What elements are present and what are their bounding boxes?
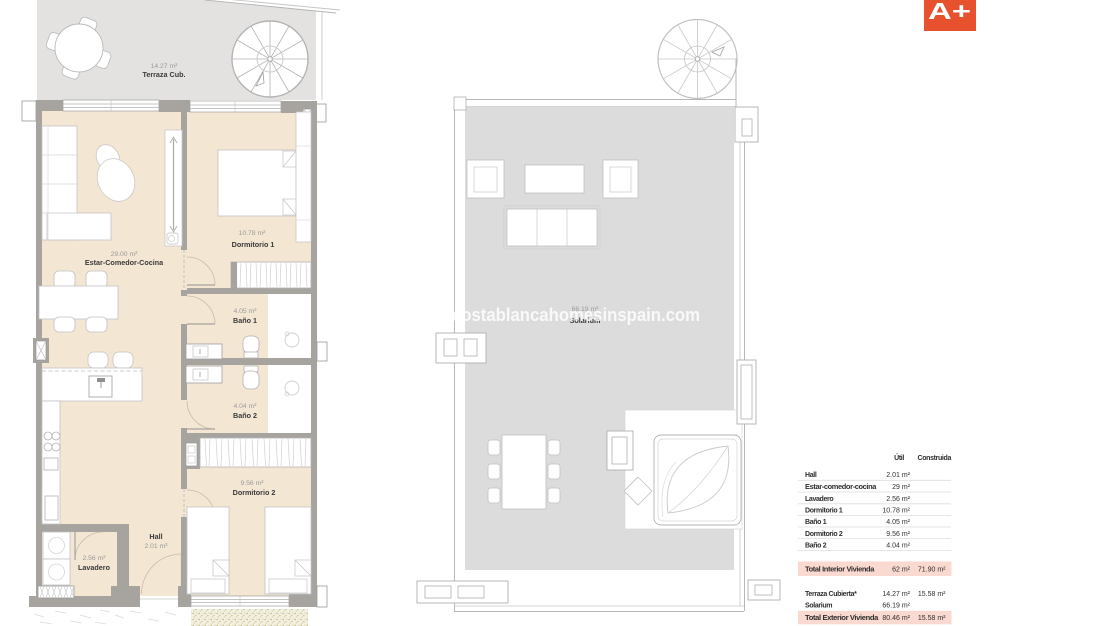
svg-text:Lavadero: Lavadero [78,563,111,572]
svg-text:10.78 m²: 10.78 m² [882,508,910,515]
svg-text:2.56 m²: 2.56 m² [82,555,106,562]
svg-text:29.00 m²: 29.00 m² [111,251,139,258]
svg-text:9.56 m²: 9.56 m² [886,531,910,538]
svg-text:Terraza Cub.: Terraza Cub. [142,70,185,79]
svg-text:Terraza Cubierta*: Terraza Cubierta* [805,591,857,598]
svg-text:Construida: Construida [918,455,952,462]
svg-text:Útil: Útil [894,453,904,462]
svg-text:9.56 m²: 9.56 m² [240,480,264,487]
svg-text:Dormitorio 2: Dormitorio 2 [805,531,843,538]
svg-text:Estar-Comedor-Cocina: Estar-Comedor-Cocina [85,258,164,267]
svg-text:costablancahomesinspain.com: costablancahomesinspain.com [452,304,700,325]
svg-text:Dormitorio 1: Dormitorio 1 [805,508,843,515]
svg-text:Baño 2: Baño 2 [805,542,827,549]
svg-text:10.78 m²: 10.78 m² [239,230,267,237]
svg-text:Lavadero: Lavadero [805,496,833,503]
svg-text:2.01 m²: 2.01 m² [886,472,910,479]
svg-text:15.58 m²: 15.58 m² [918,615,946,622]
svg-text:Dormitorio 1: Dormitorio 1 [232,240,275,249]
svg-text:80.46 m²: 80.46 m² [882,615,910,622]
svg-text:71.90 m²: 71.90 m² [918,567,946,574]
svg-text:A+: A+ [928,0,971,24]
svg-text:Baño 1: Baño 1 [805,519,827,526]
svg-text:4.05 m²: 4.05 m² [886,519,910,526]
svg-text:66.19 m²: 66.19 m² [882,603,910,610]
svg-text:4.04 m²: 4.04 m² [886,542,910,549]
svg-text:Total Interior Vivienda: Total Interior Vivienda [805,567,874,574]
svg-text:14.27 m²: 14.27 m² [151,63,179,70]
svg-text:Dormitorio 2: Dormitorio 2 [233,488,276,497]
svg-text:Baño 2: Baño 2 [233,411,257,420]
svg-text:Estar-comedor-cocina: Estar-comedor-cocina [805,484,876,491]
svg-text:Total Exterior Vivienda: Total Exterior Vivienda [805,615,878,622]
svg-text:2.56 m²: 2.56 m² [886,496,910,503]
svg-text:Hall: Hall [149,532,162,541]
svg-text:Hall: Hall [805,472,817,479]
svg-text:4.04 m²: 4.04 m² [233,403,257,410]
svg-text:29 m²: 29 m² [892,484,911,491]
svg-text:14.27 m²: 14.27 m² [882,591,910,598]
svg-text:15.58 m²: 15.58 m² [918,591,946,598]
svg-text:Solarium: Solarium [805,603,832,610]
svg-text:Baño 1: Baño 1 [233,316,257,325]
svg-text:4.05 m²: 4.05 m² [233,308,257,315]
svg-text:62 m²: 62 m² [892,567,911,574]
svg-text:2.01 m²: 2.01 m² [144,543,168,550]
